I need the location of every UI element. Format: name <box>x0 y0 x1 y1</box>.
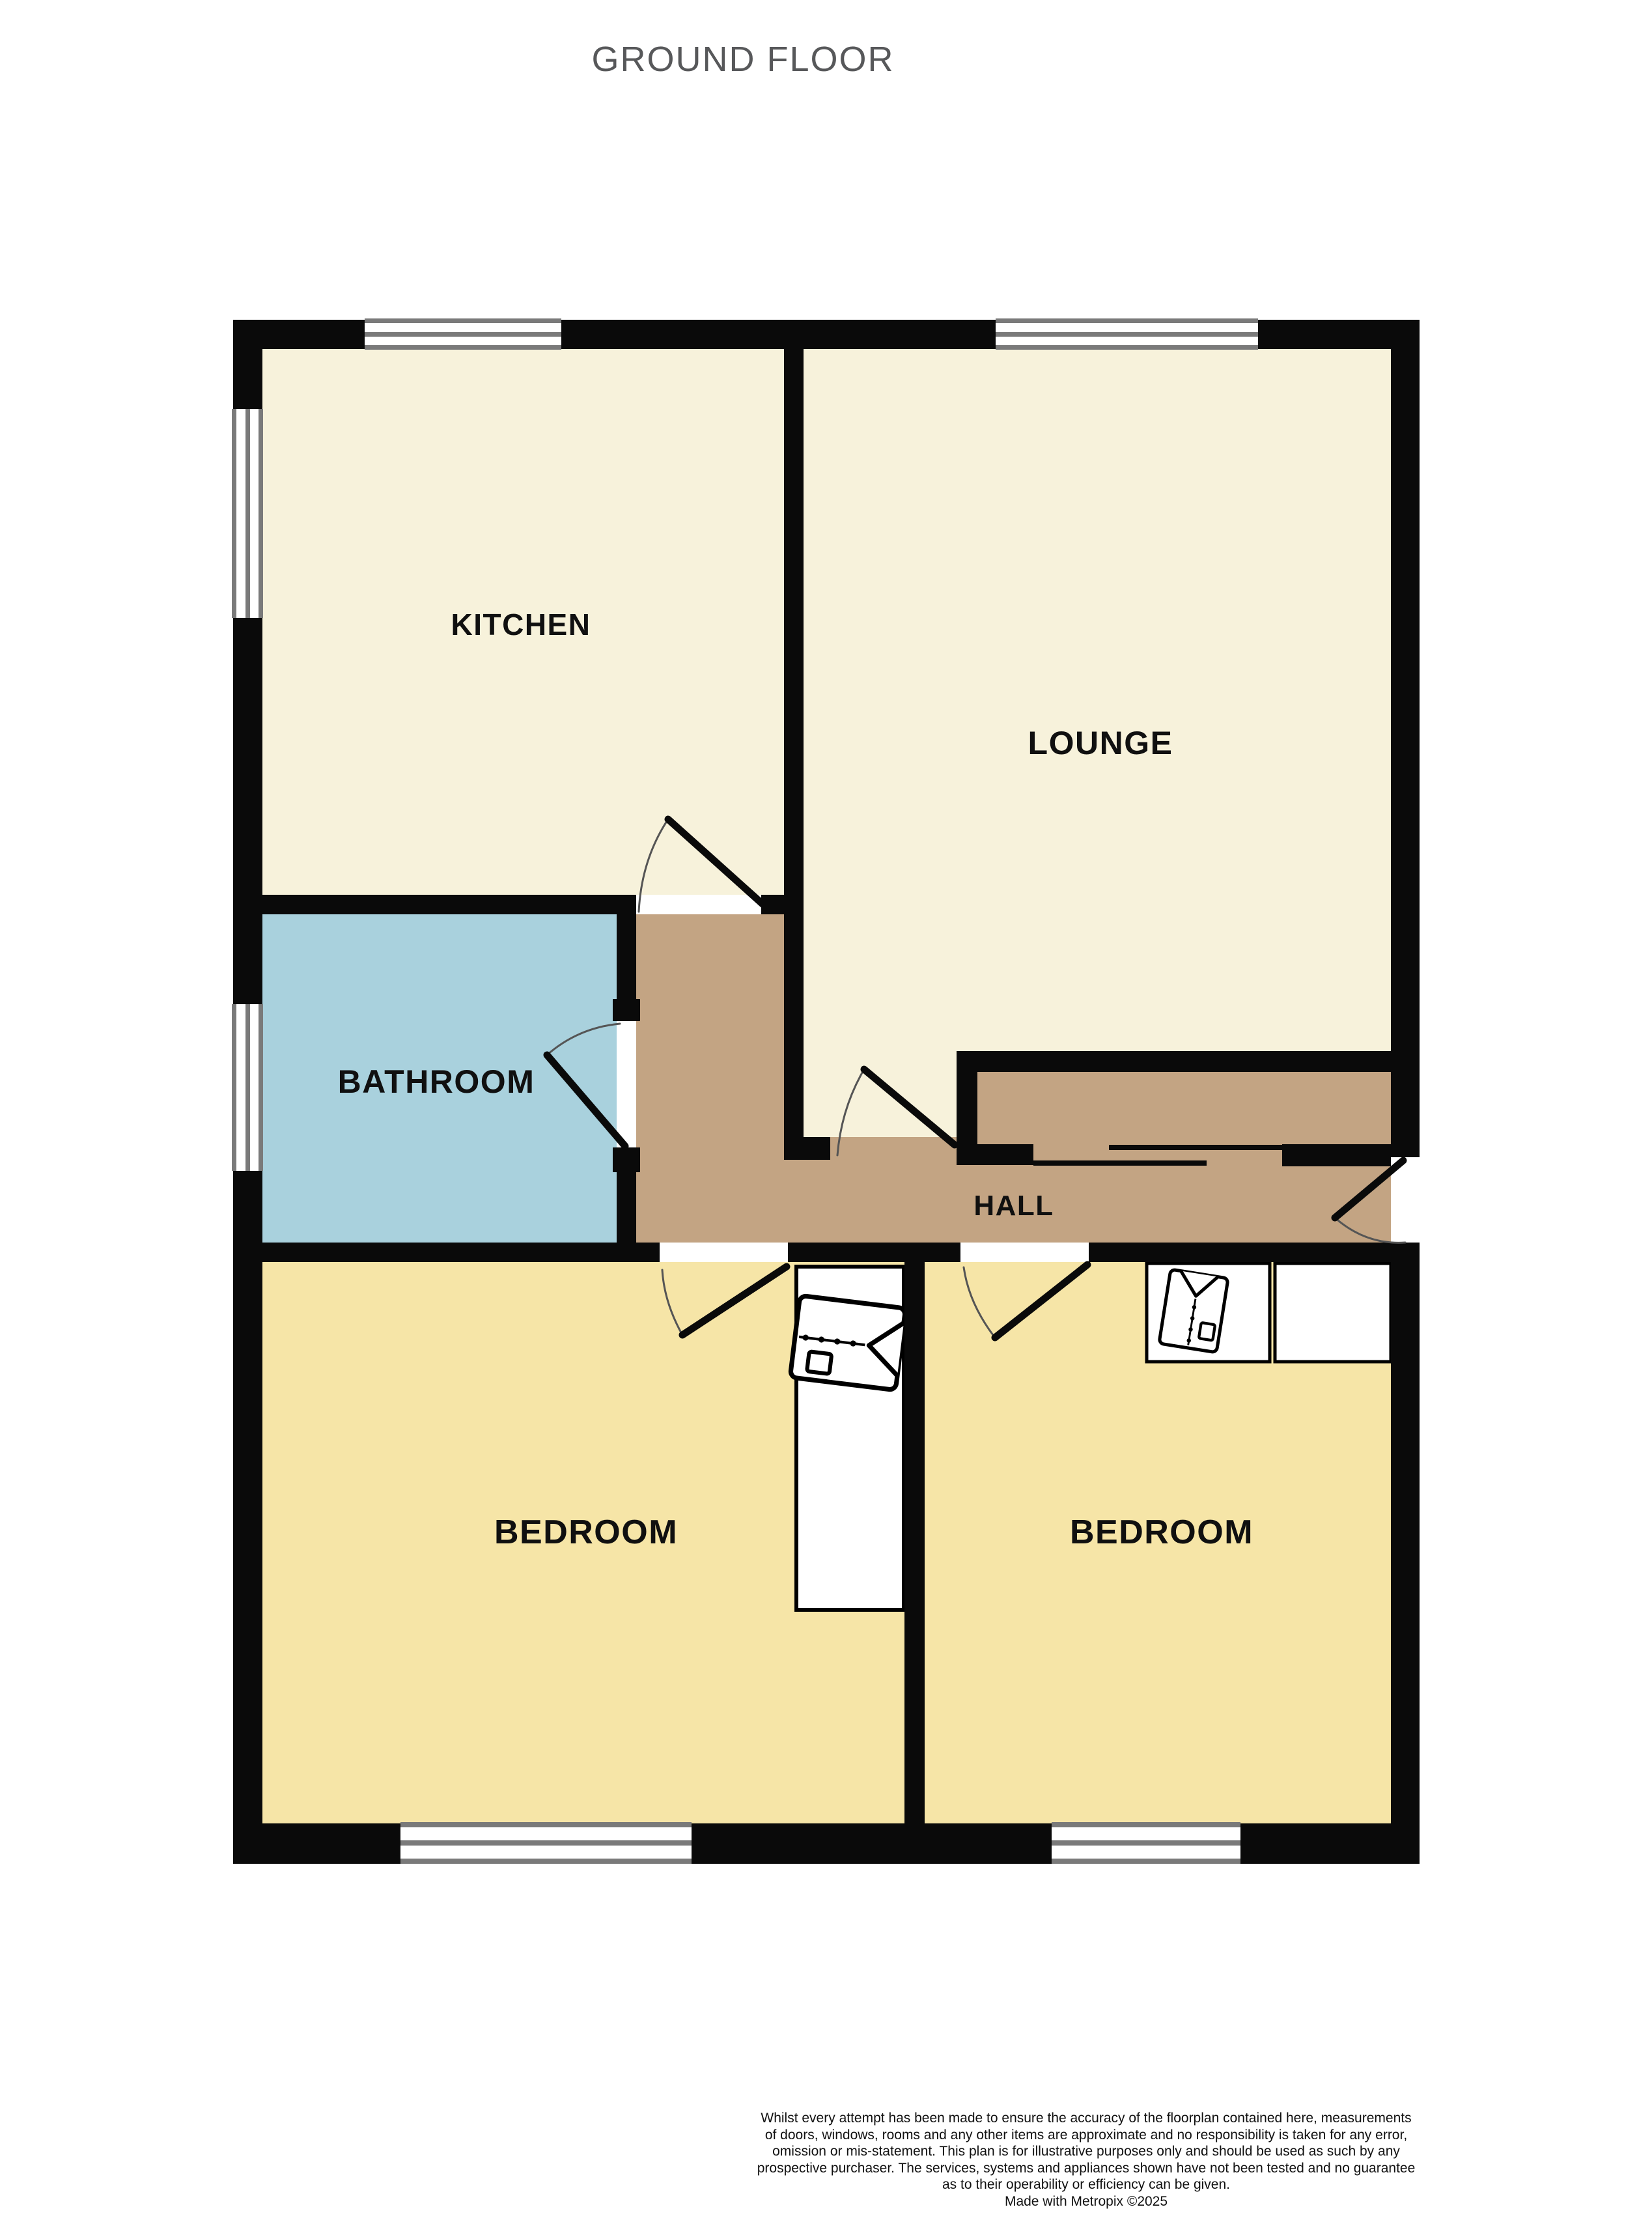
hall-label: HALL <box>973 1190 1054 1222</box>
partition-line-upper <box>1109 1145 1282 1150</box>
partition-line-lower <box>1033 1160 1207 1166</box>
window-bathroom-left <box>232 1004 263 1171</box>
wall-lounge-step-foot <box>957 1144 1033 1165</box>
shirt-icon <box>1159 1269 1228 1353</box>
wall-divider-foot <box>784 1137 830 1160</box>
wall-hall-bottom-mid <box>788 1243 960 1262</box>
bedroom-left-label: BEDROOM <box>494 1513 678 1551</box>
disclaimer-line: prospective purchaser. The services, sys… <box>757 2160 1416 2177</box>
window-bedroom-left-bottom <box>400 1822 692 1864</box>
wall-kitchen-bottom <box>262 895 617 914</box>
wall-kitchen-door-left-jamb <box>617 895 636 914</box>
window-lounge-top <box>996 318 1258 350</box>
wall-bathroom-door-bottom-jamb <box>613 1147 640 1172</box>
wardrobe-right-bedroom <box>1147 1263 1391 1362</box>
lounge-label: LOUNGE <box>1028 725 1173 761</box>
wall-kitchen-lounge-divider <box>784 349 804 1137</box>
floorplan: KITCHEN LOUNGE BATHROOM HALL BEDROOM BED… <box>0 0 1652 2220</box>
wardrobe-tall-left-bedroom <box>790 1267 905 1610</box>
bathroom-label: BATHROOM <box>338 1063 535 1100</box>
wall-right-upper <box>1391 320 1420 1157</box>
window-kitchen-left <box>232 409 263 618</box>
wall-right-lower <box>1391 1243 1420 1864</box>
window-kitchen-top <box>365 318 561 350</box>
disclaimer-line: of doors, windows, rooms and any other i… <box>757 2127 1416 2144</box>
wall-bedroom-divider <box>904 1262 925 1823</box>
wall-lounge-bottom <box>977 1051 1391 1072</box>
disclaimer-line: as to their operability or efficiency ca… <box>757 2176 1416 2193</box>
disclaimer-line: omission or mis-statement. This plan is … <box>757 2143 1416 2160</box>
wall-hall-bottom-right <box>1089 1243 1391 1262</box>
floorplan-svg: KITCHEN LOUNGE BATHROOM HALL BEDROOM BED… <box>0 0 1652 2217</box>
disclaimer: Whilst every attempt has been made to en… <box>757 2110 1416 2210</box>
disclaimer-line: Whilst every attempt has been made to en… <box>757 2110 1416 2127</box>
window-bedroom-right-bottom <box>1052 1822 1240 1864</box>
lounge-floor <box>804 349 1391 1051</box>
shirt-icon <box>790 1295 905 1390</box>
kitchen-label: KITCHEN <box>451 608 591 641</box>
wall-hall-bottom-left <box>262 1243 660 1262</box>
wall-bathroom-door-top-jamb <box>613 999 640 1021</box>
wall-vestibule-block <box>1282 1144 1391 1166</box>
bedroom-right-label: BEDROOM <box>1070 1513 1253 1551</box>
disclaimer-credit: Made with Metropix ©2025 <box>757 2193 1416 2210</box>
